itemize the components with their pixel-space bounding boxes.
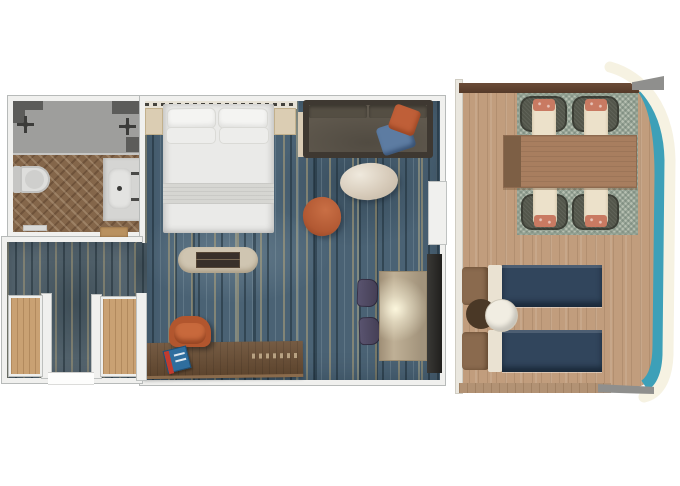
desk-inlay <box>252 353 298 359</box>
side-table <box>486 300 517 331</box>
nightstand-right <box>274 108 296 135</box>
accent-chair <box>357 279 379 308</box>
bench-insert <box>196 252 240 268</box>
balcony-door-recess <box>429 182 446 244</box>
chair-pillow <box>534 215 556 227</box>
sofa-back-cushion <box>309 105 367 118</box>
lounger-cushion <box>502 265 602 307</box>
bed-pillow <box>219 127 269 144</box>
nightstand-left <box>145 108 163 135</box>
floor-plan-scene <box>0 0 680 486</box>
bed-pillow <box>166 127 216 144</box>
entry-door-opening <box>48 372 94 385</box>
console-table <box>379 271 427 361</box>
railing-teal <box>644 89 661 386</box>
chair-pillow <box>533 99 555 111</box>
wardrobe-right <box>101 297 139 376</box>
bathroom-door-threshold <box>100 227 128 237</box>
balcony-bottom-wall <box>459 383 611 393</box>
hall-bedroom-opening <box>134 243 147 293</box>
tv-cabinet <box>427 254 442 373</box>
lounger-cushion <box>502 330 602 372</box>
magazine-line <box>175 358 186 363</box>
bed <box>163 104 274 233</box>
shower-valve-icon <box>17 116 34 133</box>
bedroom-room <box>140 96 445 385</box>
shower-valve-icon <box>119 118 136 135</box>
lounger-headrest <box>462 332 489 370</box>
faucet-icon <box>117 186 122 191</box>
dining-table-edge <box>504 136 521 187</box>
hull-curve <box>594 55 680 405</box>
lounger-pillow <box>488 330 502 372</box>
sofa <box>303 100 433 158</box>
bath-mat <box>23 225 47 231</box>
hall-bedroom-wall <box>137 292 146 380</box>
bathroom-room <box>8 96 145 237</box>
shower-shelf-icon <box>126 137 140 152</box>
bench-line <box>196 259 240 260</box>
shower-shelf-icon <box>112 101 140 114</box>
accent-chair <box>359 317 381 346</box>
hall-room <box>2 237 142 383</box>
wardrobe-left <box>9 296 42 376</box>
desk-chair-seat <box>174 323 206 344</box>
toilet-seat <box>25 170 44 189</box>
bed-fold <box>163 183 274 204</box>
hall-wall-strip <box>42 294 51 378</box>
desk-chair <box>169 316 211 347</box>
bed-bench <box>178 247 258 273</box>
hall-wall-strip <box>92 295 101 378</box>
magazine-line <box>174 352 185 357</box>
sun-lounger <box>462 330 602 372</box>
